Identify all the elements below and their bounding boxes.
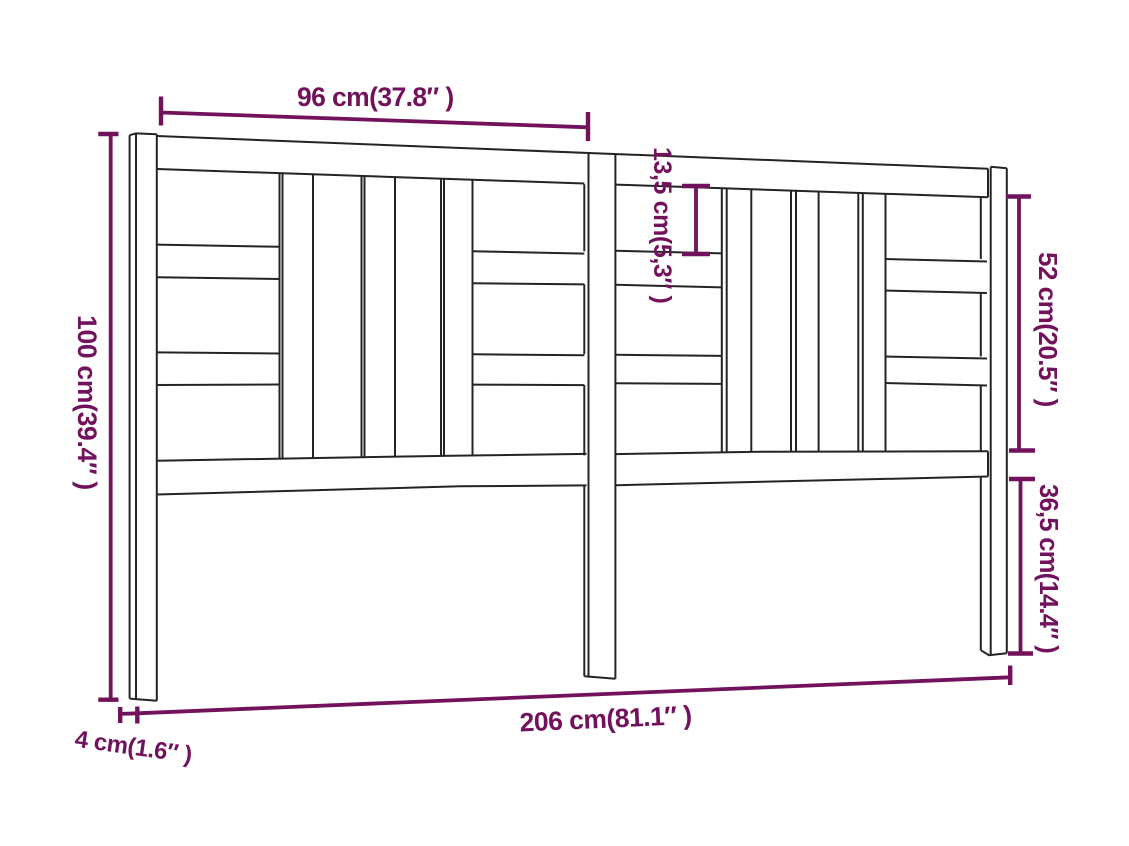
svg-text:96 cm(37.8″ ): 96 cm(37.8″ ): [297, 82, 454, 112]
svg-text:36,5 cm(14.4″ ): 36,5 cm(14.4″ ): [1034, 484, 1062, 653]
svg-text:52 cm(20.5″ ): 52 cm(20.5″ ): [1033, 252, 1063, 407]
svg-text:13,5 cm(5,3″ ): 13,5 cm(5,3″ ): [648, 147, 676, 304]
svg-text:100 cm(39.4″ ): 100 cm(39.4″ ): [72, 315, 102, 490]
